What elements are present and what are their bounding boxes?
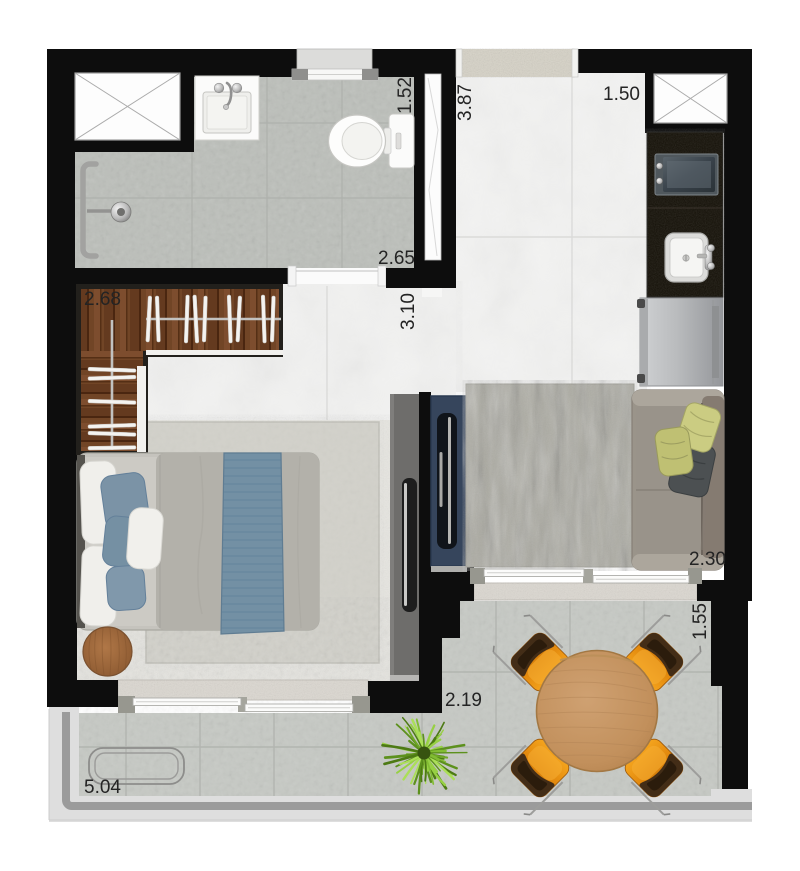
svg-text:2.68: 2.68 [84,289,121,310]
svg-text:2.65: 2.65 [378,248,415,269]
svg-text:1.55: 1.55 [690,603,711,640]
svg-text:3.10: 3.10 [398,293,419,330]
svg-text:2.30: 2.30 [689,549,726,570]
svg-text:1.50: 1.50 [603,84,640,105]
svg-text:3.87: 3.87 [455,84,476,121]
svg-text:5.04: 5.04 [84,777,121,798]
svg-text:2.19: 2.19 [445,690,482,711]
svg-text:1.52: 1.52 [395,77,416,114]
